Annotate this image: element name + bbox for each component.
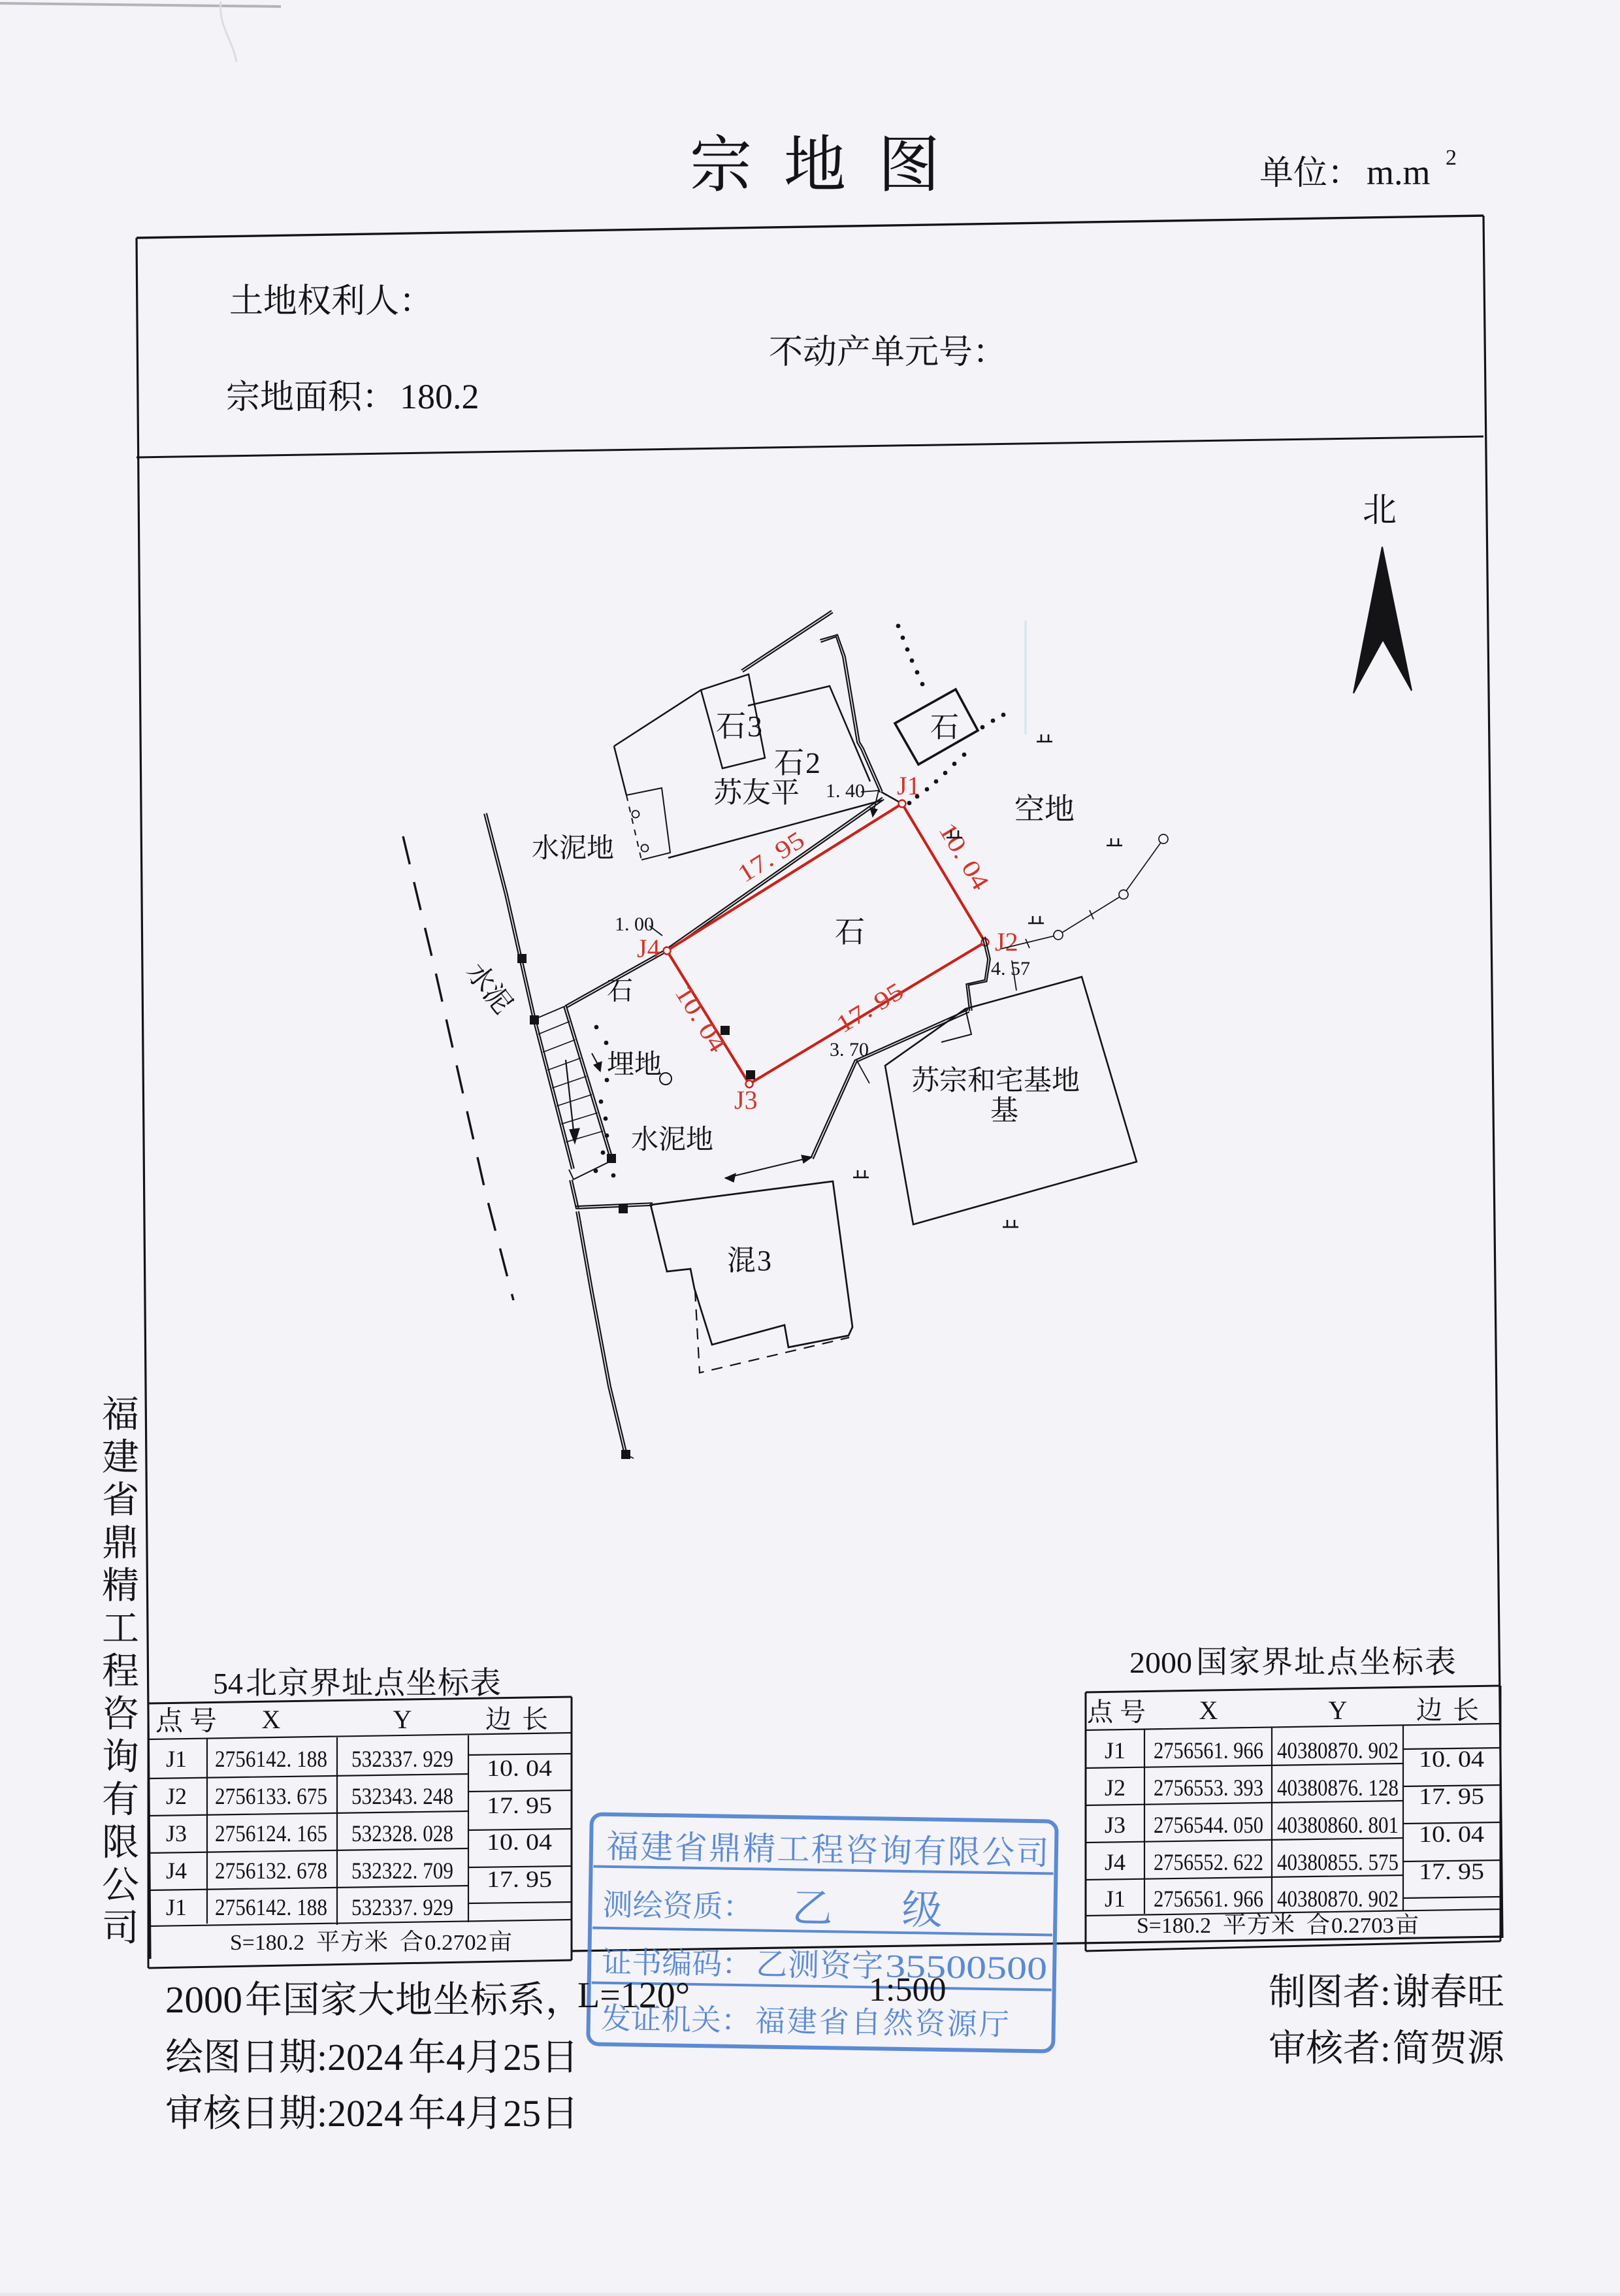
svg-text:17. 95: 17. 95 [487, 1866, 552, 1892]
svg-text:532343. 248: 532343. 248 [351, 1783, 453, 1809]
svg-text:J2: J2 [995, 927, 1018, 957]
svg-text:10. 04: 10. 04 [487, 1829, 552, 1855]
svg-text:2756142. 188: 2756142. 188 [215, 1746, 327, 1772]
svg-text::2024: :2024 [317, 2036, 403, 2078]
svg-text:2756133. 675: 2756133. 675 [215, 1783, 327, 1809]
svg-text:0.2703: 0.2703 [1331, 1914, 1394, 1938]
svg-text:532337. 929: 532337. 929 [351, 1894, 453, 1920]
svg-text:2756132. 678: 2756132. 678 [215, 1858, 327, 1884]
svg-text:1:500: 1:500 [869, 1971, 946, 2009]
svg-text:40380870. 902: 40380870. 902 [1277, 1886, 1399, 1912]
svg-text:J1: J1 [1105, 1886, 1126, 1912]
svg-text:180.2: 180.2 [400, 377, 479, 416]
svg-text:25: 25 [503, 2092, 541, 2135]
svg-text::: : [1380, 2028, 1391, 2069]
svg-text:Y: Y [1329, 1696, 1348, 1725]
svg-text:J1: J1 [166, 1894, 187, 1920]
svg-text:10. 04: 10. 04 [487, 1755, 552, 1781]
svg-text:J4: J4 [1105, 1849, 1126, 1875]
svg-text:2756561. 966: 2756561. 966 [1154, 1886, 1263, 1912]
svg-text:3: 3 [757, 1245, 771, 1277]
svg-text:J3: J3 [734, 1085, 758, 1115]
svg-text:J3: J3 [166, 1820, 187, 1846]
svg-text:40380876. 128: 40380876. 128 [1277, 1775, 1399, 1801]
svg-text:X: X [262, 1705, 281, 1734]
svg-text:2: 2 [1446, 146, 1457, 170]
svg-text:54: 54 [213, 1667, 243, 1700]
svg-text:S=180.2: S=180.2 [1137, 1914, 1211, 1938]
svg-text:40380855. 575: 40380855. 575 [1277, 1849, 1399, 1875]
svg-text:17. 95: 17. 95 [1419, 1858, 1484, 1884]
svg-text:532337. 929: 532337. 929 [351, 1746, 453, 1772]
svg-text:2756544. 050: 2756544. 050 [1154, 1812, 1263, 1838]
svg-text:3: 3 [747, 710, 762, 743]
svg-text:2756552. 622: 2756552. 622 [1154, 1849, 1263, 1875]
svg-text:J1: J1 [166, 1746, 187, 1772]
svg-text:40380860. 801: 40380860. 801 [1277, 1812, 1399, 1838]
svg-text:J1: J1 [897, 771, 920, 800]
svg-text:J4: J4 [637, 934, 660, 963]
svg-text:J1: J1 [1105, 1737, 1126, 1763]
svg-text:2756553. 393: 2756553. 393 [1154, 1775, 1263, 1801]
svg-text:S=180.2: S=180.2 [230, 1931, 304, 1955]
svg-text:L=120°: L=120° [577, 1975, 690, 2016]
svg-text:532322. 709: 532322. 709 [351, 1858, 453, 1884]
svg-text:4: 4 [446, 2092, 465, 2135]
svg-text:1. 00: 1. 00 [615, 913, 654, 935]
svg-text:2000: 2000 [165, 1978, 242, 2021]
svg-text:J3: J3 [1105, 1812, 1126, 1838]
svg-text:m.m: m.m [1367, 153, 1431, 192]
svg-text:2000: 2000 [1129, 1646, 1192, 1679]
svg-text:40380870. 902: 40380870. 902 [1277, 1737, 1399, 1763]
svg-text:J2: J2 [1105, 1775, 1126, 1801]
svg-text:2756142. 188: 2756142. 188 [215, 1894, 327, 1920]
svg-text:17. 95: 17. 95 [1419, 1783, 1484, 1809]
svg-text:J2: J2 [166, 1783, 187, 1809]
svg-text:2756561. 966: 2756561. 966 [1154, 1737, 1263, 1763]
svg-text:2756124. 165: 2756124. 165 [215, 1820, 327, 1846]
svg-text:532328. 028: 532328. 028 [351, 1820, 453, 1846]
svg-text::2024: :2024 [317, 2092, 403, 2135]
svg-text:X: X [1199, 1696, 1218, 1725]
svg-text:10. 04: 10. 04 [1419, 1821, 1484, 1847]
svg-text:25: 25 [503, 2036, 541, 2078]
svg-text:2: 2 [805, 746, 820, 779]
svg-text:4. 57: 4. 57 [991, 958, 1030, 979]
svg-text:1. 40: 1. 40 [826, 780, 865, 802]
svg-text:10. 04: 10. 04 [1419, 1746, 1484, 1772]
svg-text::: : [1380, 1972, 1391, 2013]
svg-text:4: 4 [446, 2036, 465, 2078]
svg-text:Y: Y [393, 1705, 412, 1734]
svg-text:0.2702: 0.2702 [425, 1931, 487, 1955]
svg-text:J4: J4 [166, 1858, 187, 1884]
svg-text:17. 95: 17. 95 [487, 1792, 552, 1818]
